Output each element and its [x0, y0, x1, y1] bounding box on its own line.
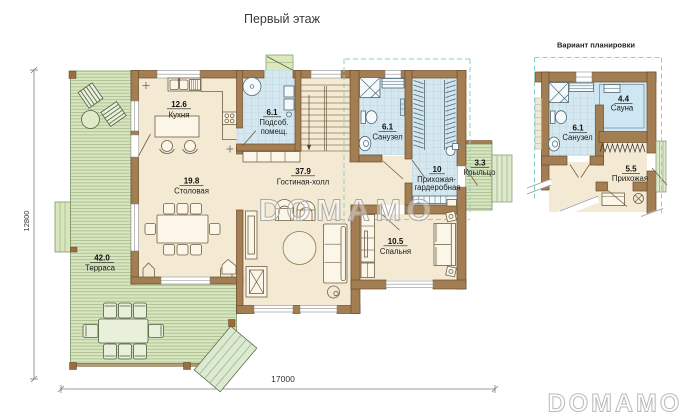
svg-text:DOMAMO: DOMAMO — [548, 390, 683, 418]
svg-text:19.8: 19.8 — [184, 177, 200, 186]
svg-text:4.4: 4.4 — [618, 95, 630, 104]
svg-text:17000: 17000 — [271, 374, 295, 384]
svg-text:6.1: 6.1 — [572, 124, 584, 133]
svg-text:Санузел: Санузел — [562, 133, 593, 142]
svg-text:3.3: 3.3 — [474, 159, 486, 168]
svg-text:12800: 12800 — [22, 211, 31, 232]
svg-text:Санузел: Санузел — [372, 133, 403, 142]
svg-text:Кухня: Кухня — [169, 111, 190, 120]
svg-text:6.1: 6.1 — [382, 123, 394, 132]
svg-text:Спальня: Спальня — [380, 247, 411, 256]
svg-text:5.5: 5.5 — [625, 165, 637, 174]
svg-text:10: 10 — [433, 165, 442, 174]
svg-text:Терраса: Терраса — [85, 264, 116, 273]
svg-text:DOMAMO: DOMAMO — [259, 193, 437, 228]
svg-text:12.6: 12.6 — [171, 100, 187, 109]
svg-text:6.1: 6.1 — [266, 108, 278, 117]
svg-text:37.9: 37.9 — [295, 167, 311, 176]
svg-text:гардеробная: гардеробная — [414, 183, 460, 192]
svg-text:Крыльцо: Крыльцо — [464, 168, 496, 177]
svg-text:10.5: 10.5 — [388, 237, 404, 246]
svg-text:помещ.: помещ. — [261, 127, 288, 136]
svg-text:Первый этаж: Первый этаж — [244, 12, 321, 26]
svg-text:Столовая: Столовая — [174, 187, 209, 196]
svg-text:Гостиная-холл: Гостиная-холл — [277, 178, 330, 187]
svg-text:Сауна: Сауна — [611, 104, 634, 113]
svg-text:Подсоб.: Подсоб. — [259, 118, 288, 127]
svg-text:Прихожая: Прихожая — [612, 174, 648, 183]
svg-text:42.0: 42.0 — [94, 254, 110, 263]
svg-text:Вариант планировки: Вариант планировки — [557, 41, 635, 50]
